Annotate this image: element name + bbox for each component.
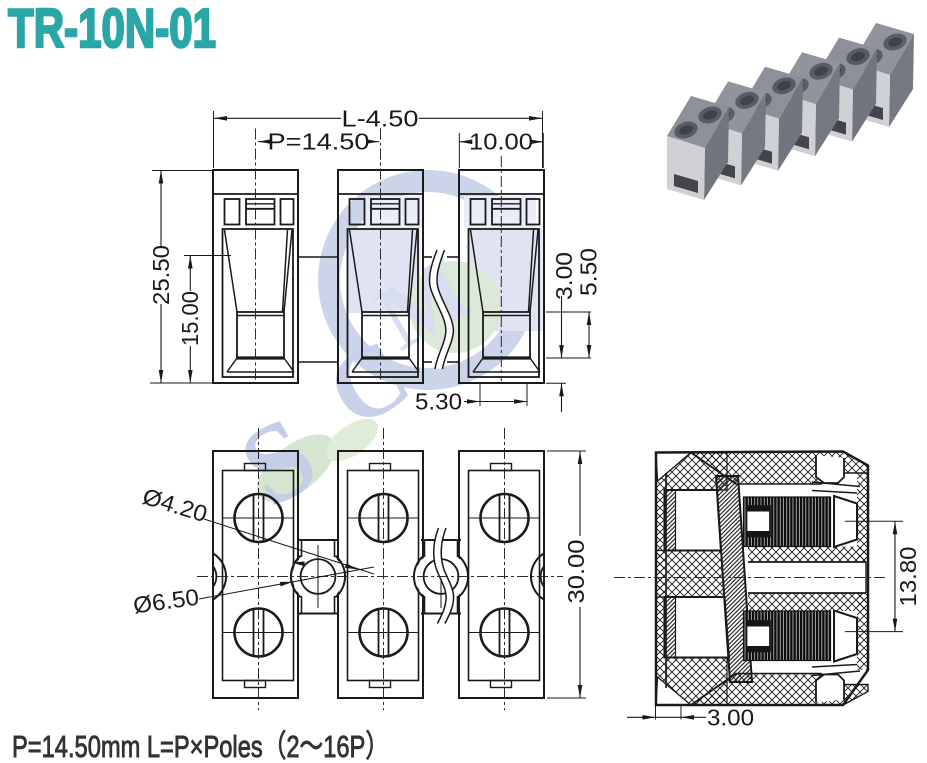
svg-text:30.00: 30.00 bbox=[563, 540, 589, 604]
svg-text:15.00: 15.00 bbox=[177, 291, 203, 346]
svg-text:P=14.50mm L=P×Poles（2～16P）: P=14.50mm L=P×Poles（2～16P） bbox=[12, 729, 389, 763]
svg-text:13.80: 13.80 bbox=[895, 547, 921, 607]
svg-text:5.50: 5.50 bbox=[576, 248, 602, 296]
svg-text:5.30: 5.30 bbox=[415, 389, 462, 415]
svg-text:3.00: 3.00 bbox=[551, 252, 577, 300]
svg-text:10.00: 10.00 bbox=[469, 129, 533, 155]
svg-text:TR-10N-01: TR-10N-01 bbox=[8, 0, 216, 59]
svg-text:3.00: 3.00 bbox=[707, 705, 754, 731]
svg-text:25.50: 25.50 bbox=[148, 245, 174, 305]
svg-text:P=14.50: P=14.50 bbox=[268, 129, 370, 155]
